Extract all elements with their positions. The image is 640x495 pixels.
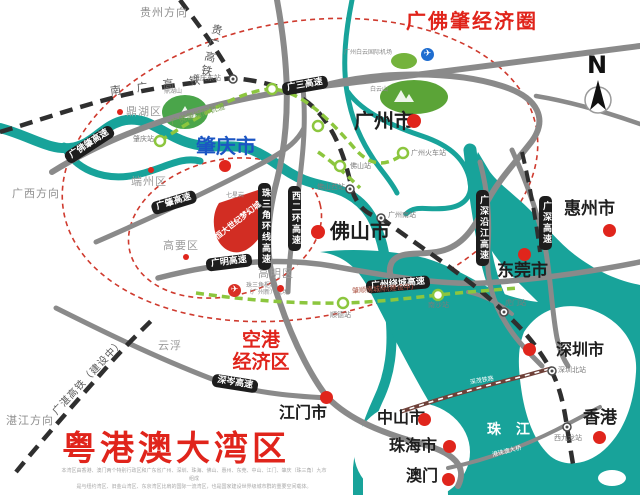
direction-zhanjiang: 湛江方向	[6, 415, 54, 428]
airport-zone-line2: 经济区	[221, 352, 301, 374]
north-park	[391, 53, 417, 69]
direction-guizhou: 贵州方向	[140, 7, 188, 20]
district-dot-duanzhou	[148, 167, 154, 173]
city-zhaoqing: 肇庆市	[196, 135, 256, 158]
station-west-kowloon: 西九龙站	[554, 433, 582, 443]
station-nansha: 南沙站	[428, 300, 449, 310]
prd-airport-label: 珠三角枢纽 （广州新）机场	[246, 283, 302, 297]
station-humen: 虎门站	[505, 298, 526, 308]
city-dot-zhongshan	[418, 413, 431, 426]
station-shunde: 顺德站	[330, 310, 351, 320]
compass-north-label: N	[587, 52, 607, 80]
road-label-gshen-expwy: 广深高速	[539, 196, 552, 250]
dinghushan-label: 鼎湖山	[164, 89, 182, 96]
station-zhaoqing-east: 肇庆东站	[193, 73, 221, 83]
station-zhaoqing: 肇庆站	[133, 134, 154, 144]
intercity-network	[160, 89, 518, 303]
road-label-west2ring-expwy: 西二环高速	[288, 186, 301, 251]
road-label-prd-ring-expwy: 珠三角环线高速	[258, 183, 271, 270]
baiyun-airport-icon: ✈	[421, 48, 434, 61]
district-dot-gaoyao	[183, 254, 189, 260]
airport-zone-line1: 空港	[221, 330, 301, 352]
city-jiangmen: 江门市	[279, 404, 327, 422]
city-dot-dongguan	[518, 248, 531, 261]
city-dot-guangzhou	[407, 114, 421, 128]
station-guangzhou-south: 广州南站	[388, 210, 416, 220]
prd-airport-icon: ✈	[228, 284, 241, 297]
bay-area-title: 粤港澳大湾区	[62, 430, 290, 469]
compass-rose	[585, 80, 611, 113]
station-guangzhou-main: 广州火车站	[411, 148, 446, 158]
qixingyan-label: 七星岩	[226, 193, 244, 200]
city-foshan: 佛山市	[330, 220, 390, 243]
city-macau: 澳门	[406, 467, 438, 485]
city-dot-zhaoqing	[219, 160, 231, 172]
island	[598, 470, 626, 486]
economic-circle-title: 广佛肇经济圈	[406, 10, 538, 33]
bay-area-map: 广佛肇经济圈 粤港澳大湾区 空港 经济区 本湾区由香港、澳门两个特别行政区和广东…	[0, 0, 640, 495]
district-dinghu: 鼎湖区	[126, 106, 162, 119]
city-dot-macau	[442, 473, 455, 486]
district-duanzhou: 端州区	[131, 176, 167, 189]
city-dot-zhuhai	[443, 440, 456, 453]
airport-zone-title: 空港 经济区	[221, 330, 301, 374]
city-hongkong: 香港	[583, 409, 617, 429]
city-dot-foshan	[311, 225, 325, 239]
city-dot-jiangmen	[320, 391, 333, 404]
prd-airport-dot	[277, 285, 284, 292]
station-foshan: 佛山站	[350, 161, 371, 171]
city-guangzhou: 广州市	[354, 110, 414, 133]
city-zhuhai: 珠海市	[389, 437, 437, 455]
bay-area-description: 本湾区由香港、澳门两个特别行政区和广东省广州、深圳、珠海、佛山、惠州、东莞、中山…	[60, 467, 328, 491]
district-gaoyao: 高要区	[163, 240, 199, 253]
pearl-river-label: 珠 江	[487, 422, 535, 438]
station-shenzhen-north: 深圳北站	[558, 365, 586, 375]
city-dot-hongkong	[593, 431, 606, 444]
city-dongguan: 东莞市	[497, 262, 548, 282]
baiyun-airport-label: 广州白云国际机场	[344, 50, 392, 57]
district-dot-dinghu	[117, 109, 123, 115]
road-label-yanjiang-expwy: 广深沿江高速	[476, 190, 489, 266]
baiyunshan-label: 白云山	[370, 87, 388, 94]
station-foshan-west: 佛山西站	[317, 182, 345, 192]
city-dot-shenzhen	[523, 343, 536, 356]
district-yunfu: 云浮	[158, 340, 182, 353]
direction-guangxi: 广西方向	[12, 188, 60, 201]
city-shenzhen: 深圳市	[556, 341, 604, 359]
city-dot-huizhou	[603, 224, 616, 237]
city-huizhou: 惠州市	[564, 200, 615, 220]
